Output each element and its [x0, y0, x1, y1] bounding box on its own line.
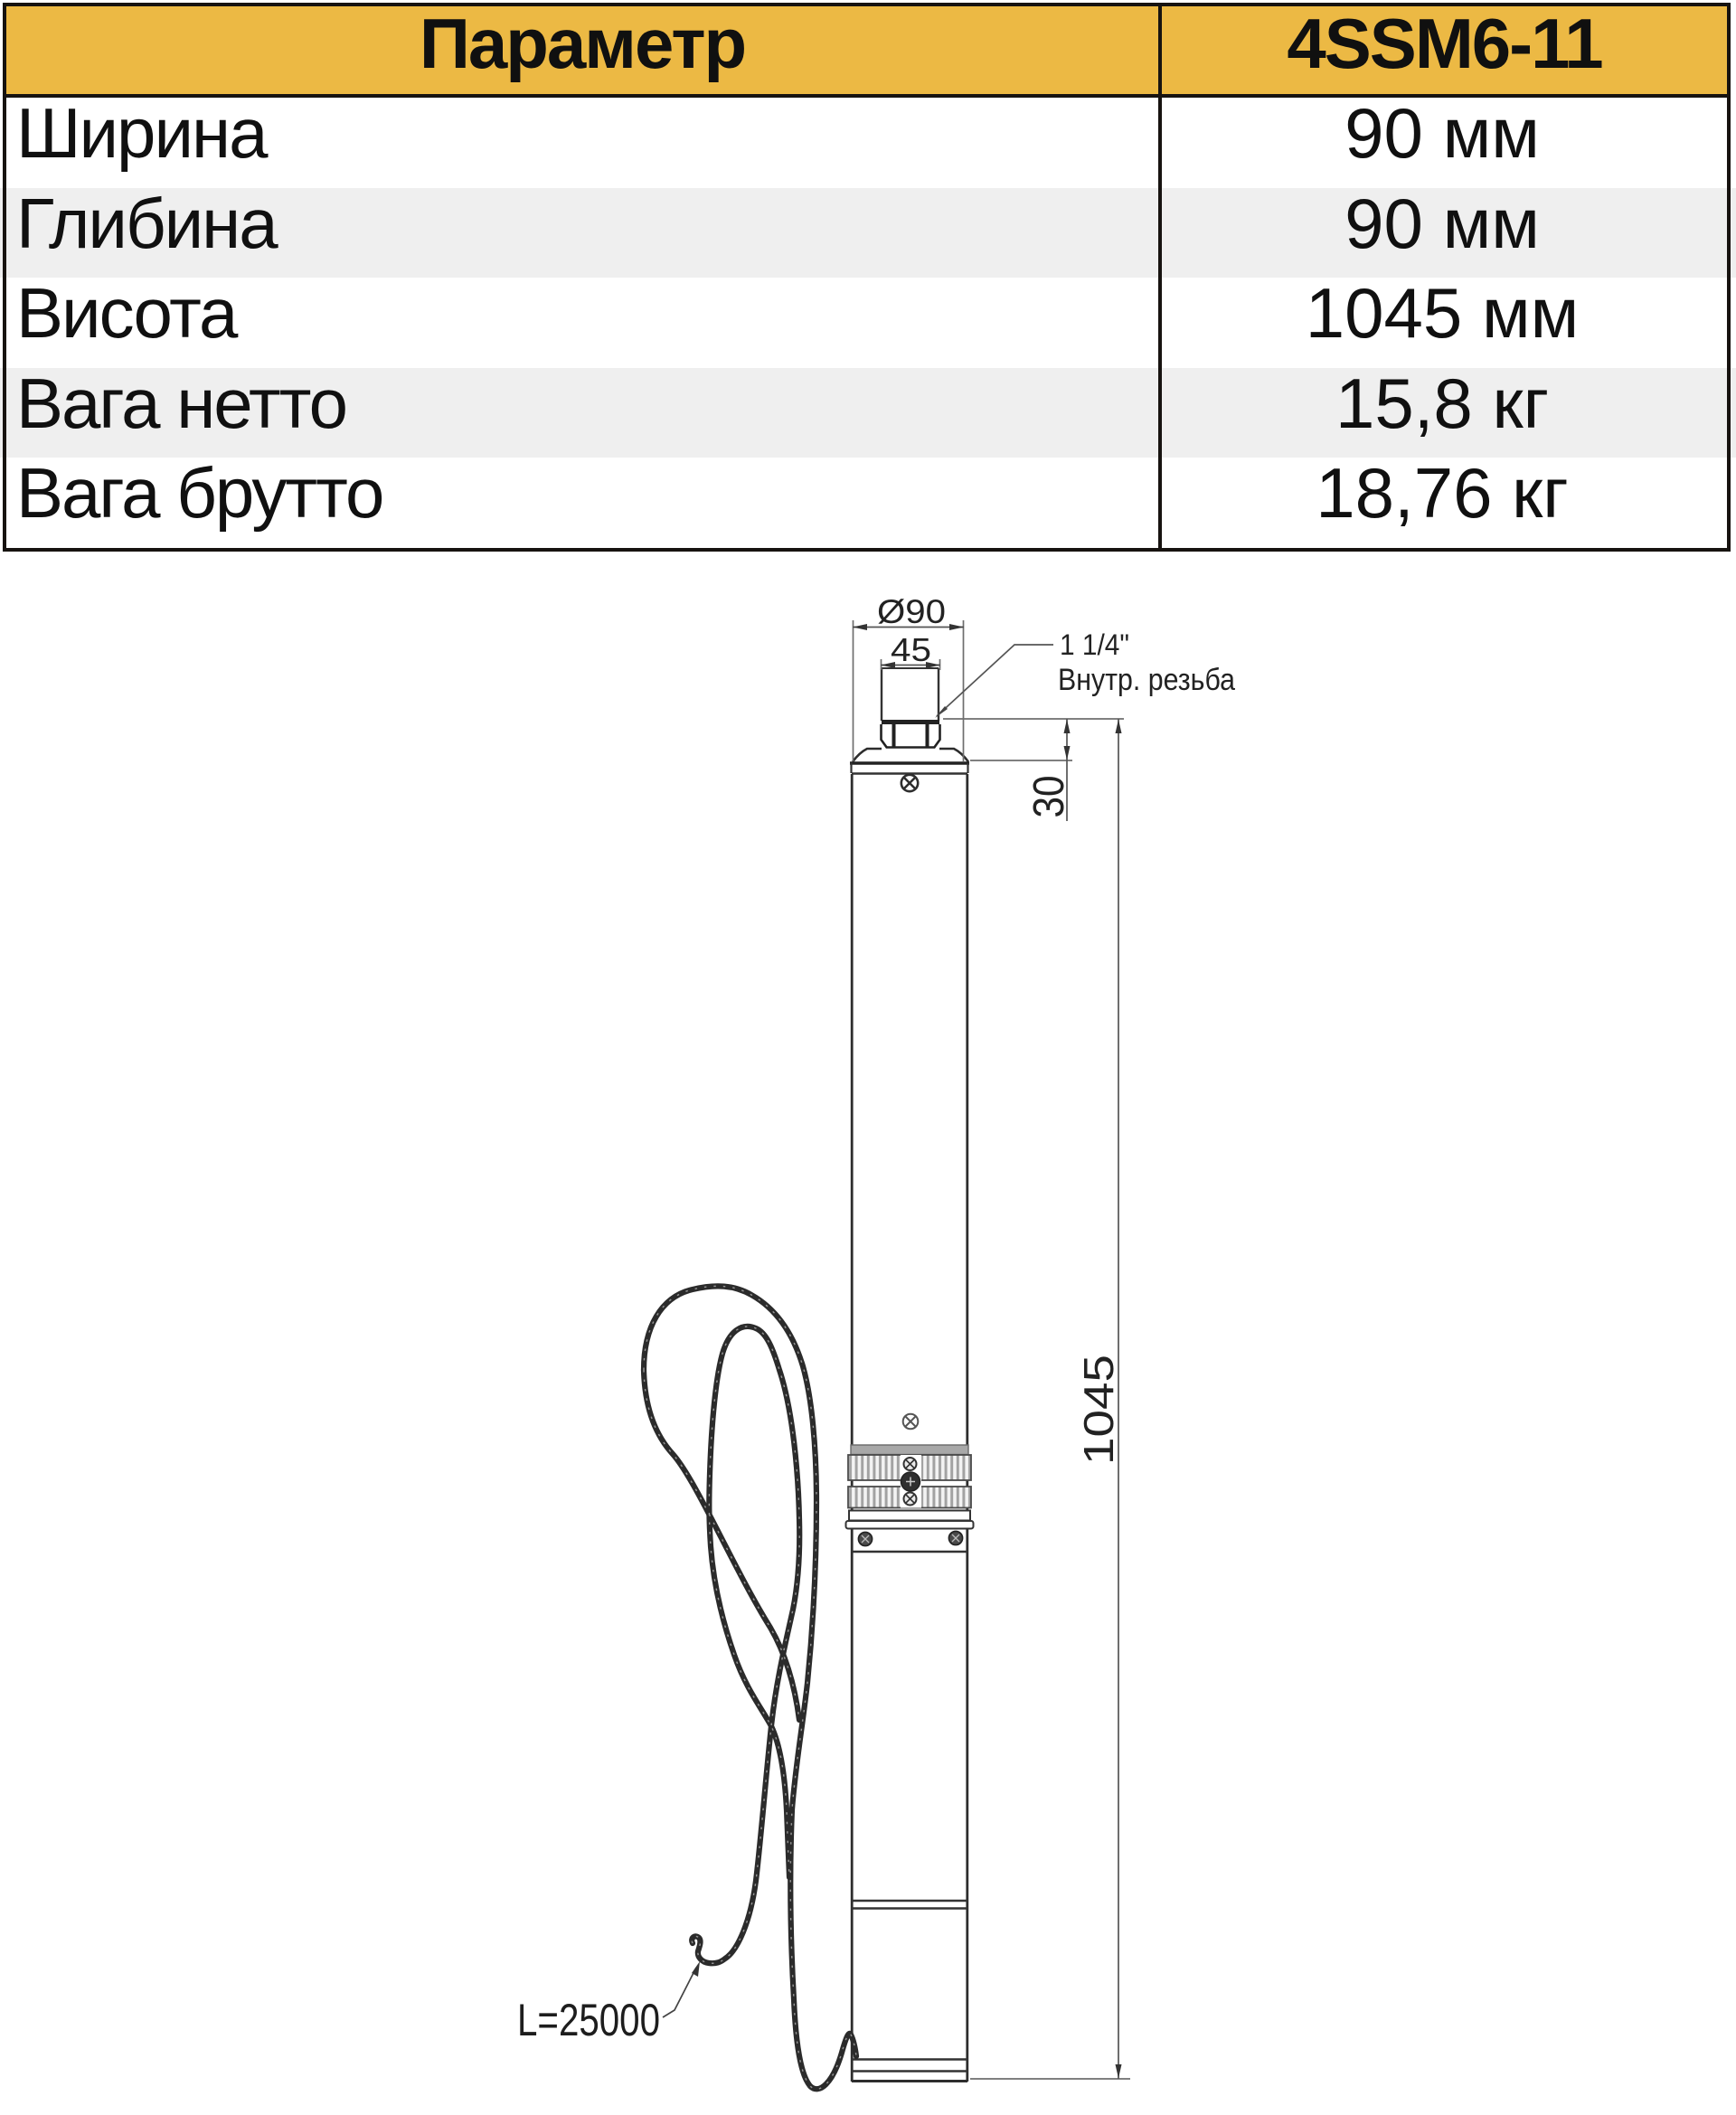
- svg-text:1 1/4": 1 1/4": [1060, 628, 1129, 661]
- svg-text:1045: 1045: [1075, 1355, 1122, 1465]
- svg-text:45: 45: [891, 631, 931, 668]
- svg-text:30: 30: [1025, 776, 1073, 818]
- svg-text:Внутр. резьба: Внутр. резьба: [1058, 663, 1235, 697]
- svg-text:Ø90: Ø90: [877, 593, 946, 630]
- svg-text:L=25000: L=25000: [517, 1995, 660, 2045]
